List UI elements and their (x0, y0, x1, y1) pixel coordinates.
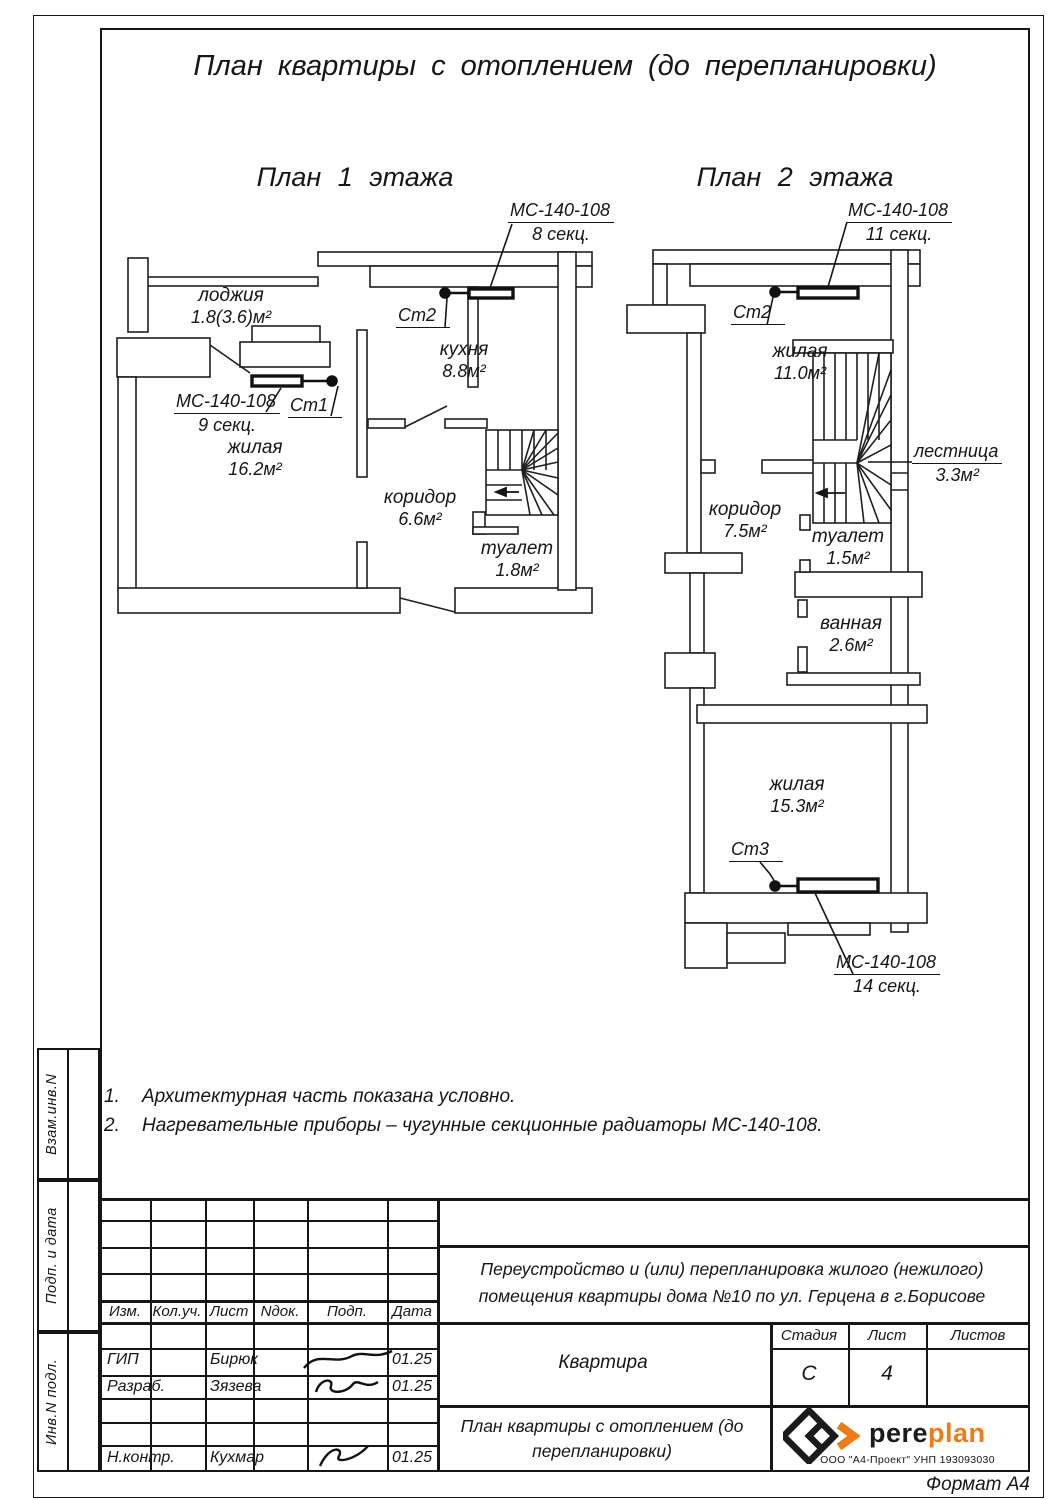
riser-label-st1: Ст1 (288, 395, 342, 418)
stage-value: С (801, 1362, 816, 1386)
note-1-number: 1. (104, 1086, 120, 1108)
signature-gip (300, 1346, 395, 1374)
stamp-col-list: Лист (210, 1303, 249, 1320)
stamp-line (770, 1348, 1030, 1350)
sidebar-box-inv: Инв.N подл. (37, 1332, 100, 1472)
riser-label-st2-plan1: Ст2 (396, 305, 450, 328)
stamp-date-razrab: 01.25 (392, 1378, 432, 1396)
sidebar-box-podp: Подп. и дата (37, 1180, 100, 1332)
sidebar-label-inv: Инв.N подл. (44, 1338, 60, 1466)
sheets-label: Листов (951, 1327, 1006, 1344)
stamp-col-koluch: Кол.уч. (153, 1303, 202, 1320)
stamp-name-biryuk: Бирюк (210, 1351, 258, 1369)
stamp-date-nkontr: 01.25 (392, 1449, 432, 1467)
drawing-sheet: План квартиры с отоплением (до переплани… (0, 0, 1060, 1500)
stamp-line (437, 1245, 1030, 1248)
format-label: Формат А4 (830, 1474, 1030, 1496)
room-label-corridor1: коридор 6.6м² (384, 486, 456, 530)
stamp-line (205, 1198, 207, 1472)
sidebar-divider (67, 1182, 69, 1330)
room-label-wc2: туалет 1.5м² (812, 525, 884, 569)
stamp-col-podp: Подп. (327, 1303, 367, 1320)
note-2-number: 2. (104, 1115, 120, 1137)
stamp-name-kukhmar: Кухмар (210, 1449, 264, 1467)
stamp-line (387, 1198, 389, 1472)
room-label-bath: ванная 2.6м² (820, 612, 882, 656)
sidebar-divider (67, 1334, 69, 1470)
stamp-line (150, 1198, 152, 1472)
company-name: ООО "А4-Проект" УНП 193093030 (790, 1454, 1025, 1466)
stamp-name-zyazeva: Зязева (210, 1378, 261, 1396)
room-label-living1: жилая 16.2м² (227, 436, 282, 480)
room-label-living3: жилая 15.3м² (769, 773, 824, 817)
stamp-col-izm: Изм. (109, 1303, 141, 1320)
stamp-line (100, 1322, 1030, 1325)
stamp-role-gip: ГИП (107, 1351, 139, 1369)
stamp-col-data: Дата (392, 1303, 432, 1320)
signature-nkontr (312, 1442, 382, 1470)
sidebar-divider (67, 1050, 69, 1178)
stamp-line (437, 1405, 1030, 1408)
stamp-line (253, 1198, 255, 1472)
sidebar-box-vzam: Взам.инв.N (37, 1048, 100, 1180)
riser-label-st2-plan2: Ст2 (731, 302, 785, 325)
sheet-value: 4 (881, 1362, 893, 1386)
doc-title: План квартиры с отоплением (до переплани… (447, 1414, 757, 1464)
stamp-line (307, 1198, 309, 1472)
stamp-role-nkontr: Н.контр. (107, 1449, 175, 1467)
note-2-text: Нагревательные приборы – чугунные секцио… (142, 1115, 823, 1137)
stamp-role-razrab: Разраб. (107, 1378, 165, 1396)
stamp-date-gip: 01.25 (392, 1351, 432, 1369)
project-title: Переустройство и (или) перепланировка жи… (447, 1256, 1017, 1310)
stamp-line (437, 1198, 440, 1472)
stamp-line (848, 1322, 850, 1405)
stamp-line (926, 1322, 928, 1405)
room-label-kitchen: кухня 8.8м² (440, 338, 489, 382)
plan2-title: План 2 этажа (697, 162, 894, 193)
riser-label-st3: Ст3 (729, 839, 783, 862)
stage-label: Стадия (781, 1327, 837, 1344)
radiator-label-8sec: МС-140-108 8 секц. (508, 200, 614, 245)
stamp-top-line (100, 1198, 1030, 1201)
pereplan-logo-text: pereplan (869, 1418, 986, 1449)
room-label-living2: жилая 11.0м² (772, 340, 827, 384)
radiator-label-9sec: МС-140-108 9 секц. (174, 391, 280, 436)
stamp-line (770, 1322, 773, 1472)
room-label-loggia: лоджия 1.8(3.6)м² (191, 284, 271, 328)
room-label-wc1: туалет 1.8м² (481, 537, 553, 581)
room-label-corridor2: коридор 7.5м² (709, 498, 781, 542)
plan1-title: План 1 этажа (257, 162, 454, 193)
signature-razrab (308, 1376, 388, 1398)
brand-orange: plan (928, 1418, 986, 1448)
object-name: Квартира (558, 1352, 647, 1374)
radiator-label-14sec: МС-140-108 14 секц. (834, 952, 940, 997)
note-1-text: Архитектурная часть показана условно. (142, 1086, 515, 1108)
sidebar-label-vzam: Взам.инв.N (44, 1054, 60, 1174)
sidebar-label-podp: Подп. и дата (44, 1186, 60, 1326)
stamp-col-ndok: Nдок. (261, 1303, 300, 1320)
room-label-stairs: лестница 3.3м² (912, 441, 1002, 486)
sheet-title: План квартиры с отоплением (до переплани… (193, 50, 936, 83)
sheet-label: Лист (868, 1327, 907, 1344)
brand-black: pere (869, 1418, 928, 1448)
radiator-label-11sec: МС-140-108 11 секц. (846, 200, 952, 245)
